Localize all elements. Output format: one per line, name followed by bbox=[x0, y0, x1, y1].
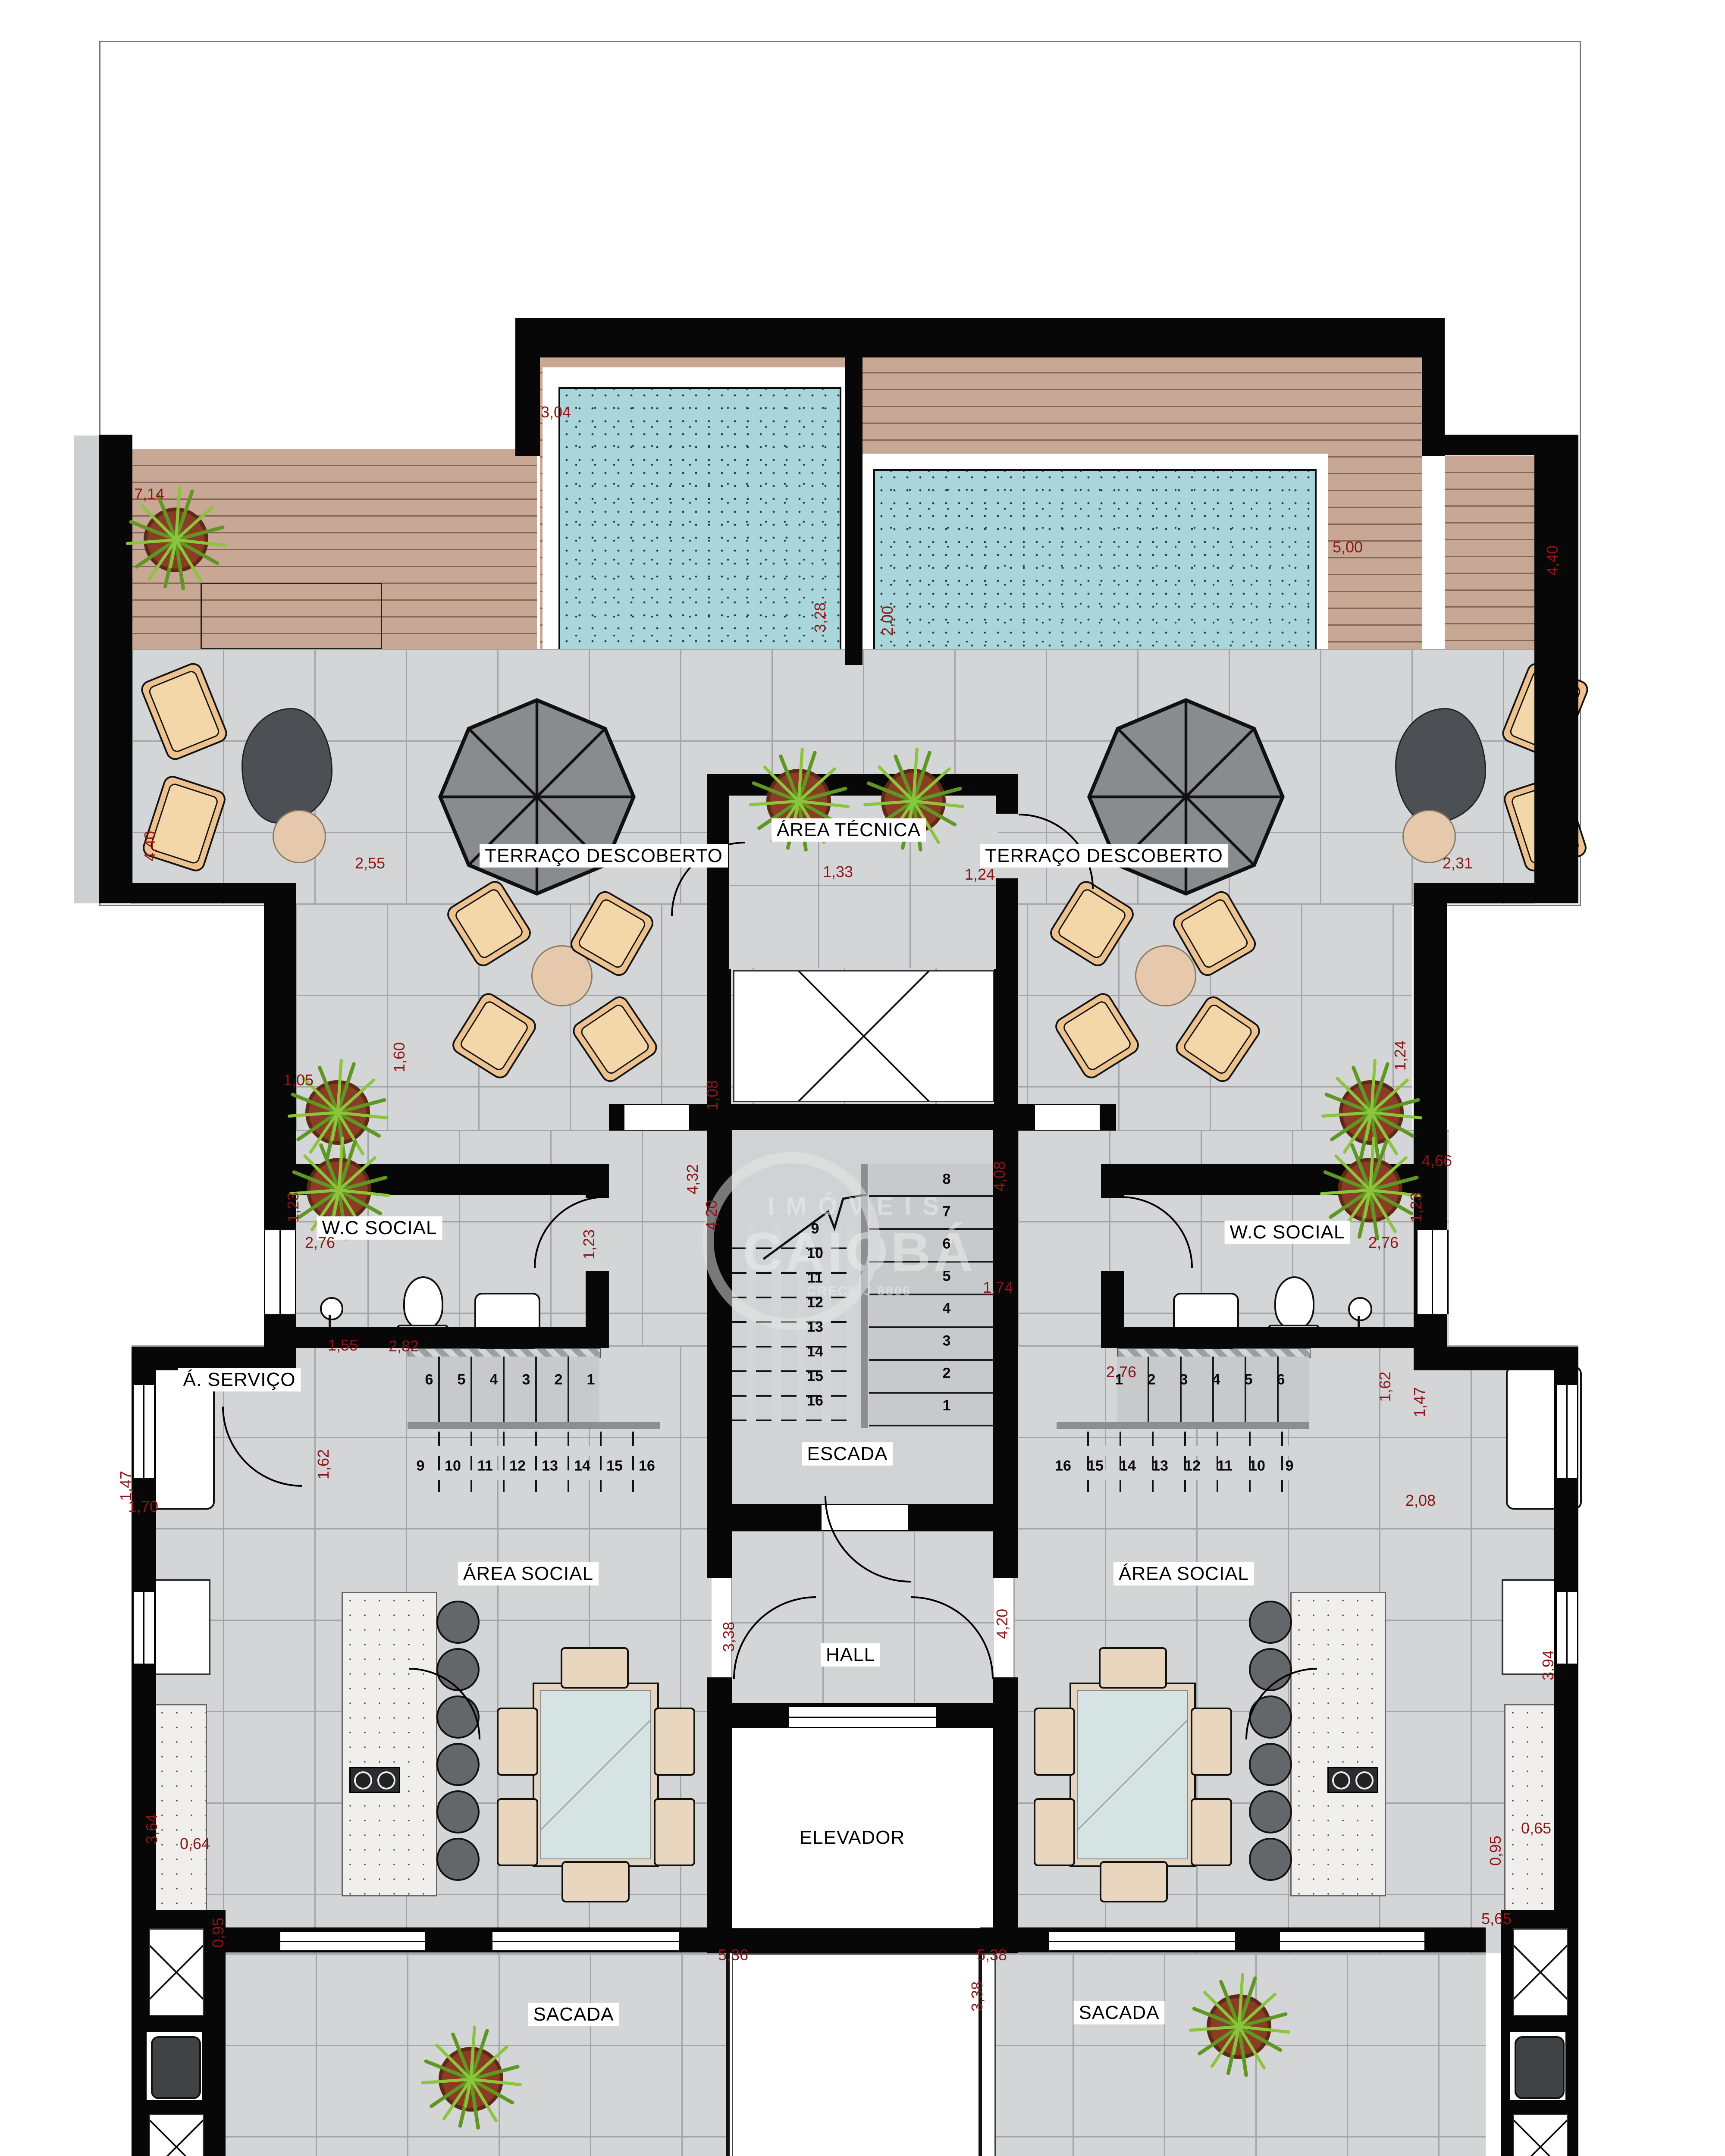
stair-step-number: 14 bbox=[807, 1344, 823, 1360]
stair-step-number: 5 bbox=[1245, 1372, 1253, 1388]
stair-step-number: 1 bbox=[587, 1372, 595, 1388]
stair-step-number: 10 bbox=[1249, 1458, 1265, 1475]
stair-step-number: 2 bbox=[555, 1372, 563, 1388]
stair-numbers: 8765432191011121314151665432191011121314… bbox=[0, 0, 1725, 2156]
stair-step-number: 4 bbox=[490, 1372, 498, 1388]
stair-step-number: 14 bbox=[1120, 1458, 1136, 1475]
stair-step-number: 8 bbox=[943, 1171, 951, 1188]
stair-step-number: 3 bbox=[1180, 1372, 1188, 1388]
stair-step-number: 13 bbox=[807, 1319, 823, 1336]
stair-step-number: 6 bbox=[425, 1372, 433, 1388]
floor-plan: IMÓVEIS CAIOBÁ CRECI: J 8806 ÁREA TÉCNIC… bbox=[0, 0, 1725, 2156]
stair-step-number: 16 bbox=[639, 1458, 655, 1475]
stair-step-number: 4 bbox=[1212, 1372, 1220, 1388]
stair-step-number: 12 bbox=[509, 1458, 526, 1475]
stair-step-number: 11 bbox=[1217, 1458, 1233, 1475]
stair-step-number: 13 bbox=[1152, 1458, 1168, 1475]
stair-step-number: 3 bbox=[522, 1372, 530, 1388]
stair-step-number: 1 bbox=[943, 1398, 951, 1414]
stair-step-number: 12 bbox=[807, 1294, 823, 1311]
stair-step-number: 9 bbox=[811, 1221, 819, 1238]
stair-step-number: 2 bbox=[1148, 1372, 1156, 1388]
stair-step-number: 15 bbox=[606, 1458, 623, 1475]
stair-step-number: 13 bbox=[542, 1458, 558, 1475]
stair-step-number: 1 bbox=[1115, 1372, 1123, 1388]
stair-step-number: 5 bbox=[458, 1372, 466, 1388]
stair-step-number: 4 bbox=[943, 1300, 951, 1317]
stair-step-number: 7 bbox=[943, 1203, 951, 1220]
stair-step-number: 5 bbox=[943, 1268, 951, 1285]
stair-step-number: 15 bbox=[807, 1368, 823, 1385]
stair-step-number: 16 bbox=[1055, 1458, 1071, 1475]
stair-step-number: 6 bbox=[943, 1236, 951, 1253]
stair-step-number: 6 bbox=[1277, 1372, 1285, 1388]
stair-step-number: 9 bbox=[417, 1458, 425, 1475]
stair-step-number: 10 bbox=[807, 1245, 823, 1262]
stair-step-number: 2 bbox=[943, 1365, 951, 1382]
stair-step-number: 11 bbox=[807, 1270, 823, 1287]
stair-step-number: 3 bbox=[943, 1333, 951, 1350]
stair-step-number: 12 bbox=[1184, 1458, 1201, 1475]
stair-step-number: 11 bbox=[477, 1458, 493, 1475]
stair-step-number: 14 bbox=[574, 1458, 590, 1475]
stair-step-number: 15 bbox=[1087, 1458, 1104, 1475]
stair-step-number: 10 bbox=[445, 1458, 461, 1475]
stair-step-number: 9 bbox=[1286, 1458, 1294, 1475]
stair-step-number: 16 bbox=[807, 1393, 823, 1410]
